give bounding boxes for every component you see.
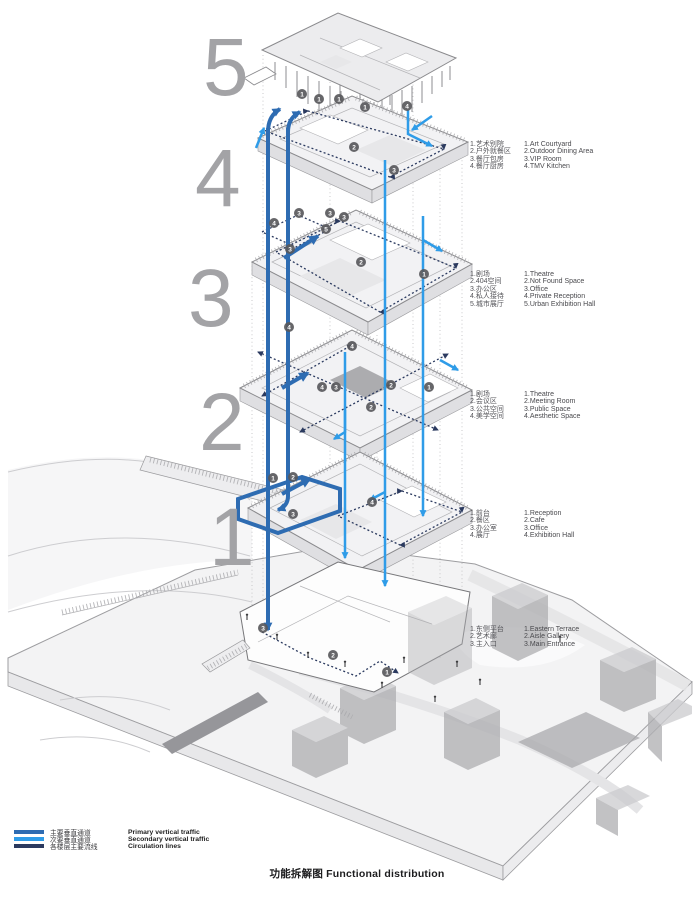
floor-label-zh: 2.户外就餐区 [470,148,520,155]
svg-text:1: 1 [271,475,275,482]
axonometric-scene: 1 1 1 1 4 2 3 3 3 3 4 5 3 2 1 4 4 4 3 2 … [0,0,700,924]
floor-number-3: 3 [188,258,234,340]
circulation-line-swatch [14,844,44,847]
diagram-title: 功能拆解图 Functional distribution [0,866,700,881]
svg-text:3: 3 [334,384,338,391]
floor-label-en: 2.Cafe [524,517,574,524]
floor-label-zh: 4.美学空间 [470,413,520,420]
floor-3-plate [240,330,472,461]
floor-label-en: 4.Exhibition Hall [524,532,574,539]
floor-number-1: 1 [209,497,255,579]
floor-1-labels: 1.东侧平台1.Eastern Terrace 2.艺术廊2.Aisle Gal… [470,626,579,648]
floor-label-en: 5.Urban Exhibition Hall [524,301,595,308]
floor-3-labels: 1.剧场1.Theatre 2.会议区2.Meeting Room 3.公共空间… [470,391,580,421]
floor-label-en: 3.Main Entrance [524,641,579,648]
svg-text:3: 3 [342,214,346,221]
diagram-title-zh: 功能拆解图 [270,868,324,880]
svg-text:1: 1 [385,669,389,676]
floor-label-zh: 2.404空间 [470,278,520,285]
floor-number-5: 5 [203,27,249,109]
svg-text:4: 4 [272,220,276,227]
floor-label-en: 1.Theatre [524,271,595,278]
svg-text:1: 1 [363,104,367,111]
svg-text:2: 2 [359,259,363,266]
svg-text:1: 1 [317,96,321,103]
floor-label-en: 1.Art Courtyard [524,141,593,148]
functional-distribution-diagram: 1 1 1 1 4 2 3 3 3 3 4 5 3 2 1 4 4 4 3 2 … [0,0,700,924]
floor-label-en: 3.VIP Room [524,156,593,163]
primary-line-swatch [14,830,44,833]
svg-text:4: 4 [370,499,374,506]
floor-label-en: 1.Eastern Terrace [524,626,579,633]
floor-label-en: 3.Public Space [524,406,580,413]
floor-label-zh: 2.艺术廊 [470,633,520,640]
legend-label-en: Circulation lines [128,843,209,850]
legend: 主要垂直通道 Primary vertical traffic 次要垂直通道 S… [14,827,209,849]
floor-label-en: 2.Outdoor Dining Area [524,148,593,155]
floor-label-en: 1.Theatre [524,391,580,398]
svg-text:3: 3 [392,167,396,174]
legend-row-circulation: 各楼层主要流线 Circulation lines [14,841,209,848]
svg-text:4: 4 [287,324,291,331]
floor-4-labels: 1.剧场1.Theatre 2.404空间2.Not Found Space 3… [470,271,595,308]
floor-label-zh: 4.私人接待 [470,293,520,300]
floor-label-en: 2.Meeting Room [524,398,580,405]
context-tower [408,596,472,685]
floor-label-zh: 4.展厅 [470,532,520,539]
floor-label-en: 4.Private Reception [524,293,595,300]
floor-label-en: 4.Aesthetic Space [524,413,580,420]
svg-text:1: 1 [427,384,431,391]
floor-label-zh: 2.餐区 [470,517,520,524]
svg-text:2: 2 [291,474,295,481]
svg-text:1: 1 [337,96,341,103]
diagram-title-en: Functional distribution [326,868,444,880]
svg-text:2: 2 [352,144,356,151]
legend-label-en: Primary vertical traffic [128,829,209,836]
floor-5-labels: 1.艺术别院1.Art Courtyard 2.户外就餐区2.Outdoor D… [470,141,593,171]
svg-text:3: 3 [261,625,265,632]
svg-text:2: 2 [369,404,373,411]
floor-4-plate [252,210,472,335]
floor-2-labels: 1.前台1.Reception 2.餐区2.Cafe 3.办公室3.Office… [470,510,574,540]
floor-label-en: 3.Office [524,525,574,532]
floor-label-en: 4.TMV Kitchen [524,163,593,170]
floor-label-en: 2.Aisle Gallery [524,633,579,640]
legend-row-secondary: 次要垂直通道 Secondary vertical traffic [14,834,209,841]
svg-text:4: 4 [350,343,354,350]
svg-text:5: 5 [324,226,328,233]
legend-label-en: Secondary vertical traffic [128,836,209,843]
floor-label-en: 2.Not Found Space [524,278,595,285]
floor-number-4: 4 [195,138,241,220]
svg-text:1: 1 [422,271,426,278]
svg-text:2: 2 [331,652,335,659]
svg-text:3: 3 [297,210,301,217]
secondary-line-swatch [14,837,44,840]
svg-text:4: 4 [405,103,409,110]
floor-label-zh: 3.主入口 [470,641,520,648]
svg-text:1: 1 [300,91,304,98]
floor-label-en: 1.Reception [524,510,574,517]
floor-label-zh: 4.餐厅厨房 [470,163,520,170]
svg-text:3: 3 [291,511,295,518]
floor-label-en: 3.Office [524,286,595,293]
floor-label-zh: 2.会议区 [470,398,520,405]
floor-label-zh: 5.城市展厅 [470,301,520,308]
svg-text:4: 4 [320,384,324,391]
svg-text:3: 3 [328,210,332,217]
legend-row-primary: 主要垂直通道 Primary vertical traffic [14,827,209,834]
svg-text:2: 2 [389,382,393,389]
svg-text:3: 3 [288,246,292,253]
legend-label-zh: 各楼层主要流线 [50,841,128,851]
floor-number-2: 2 [199,382,245,464]
